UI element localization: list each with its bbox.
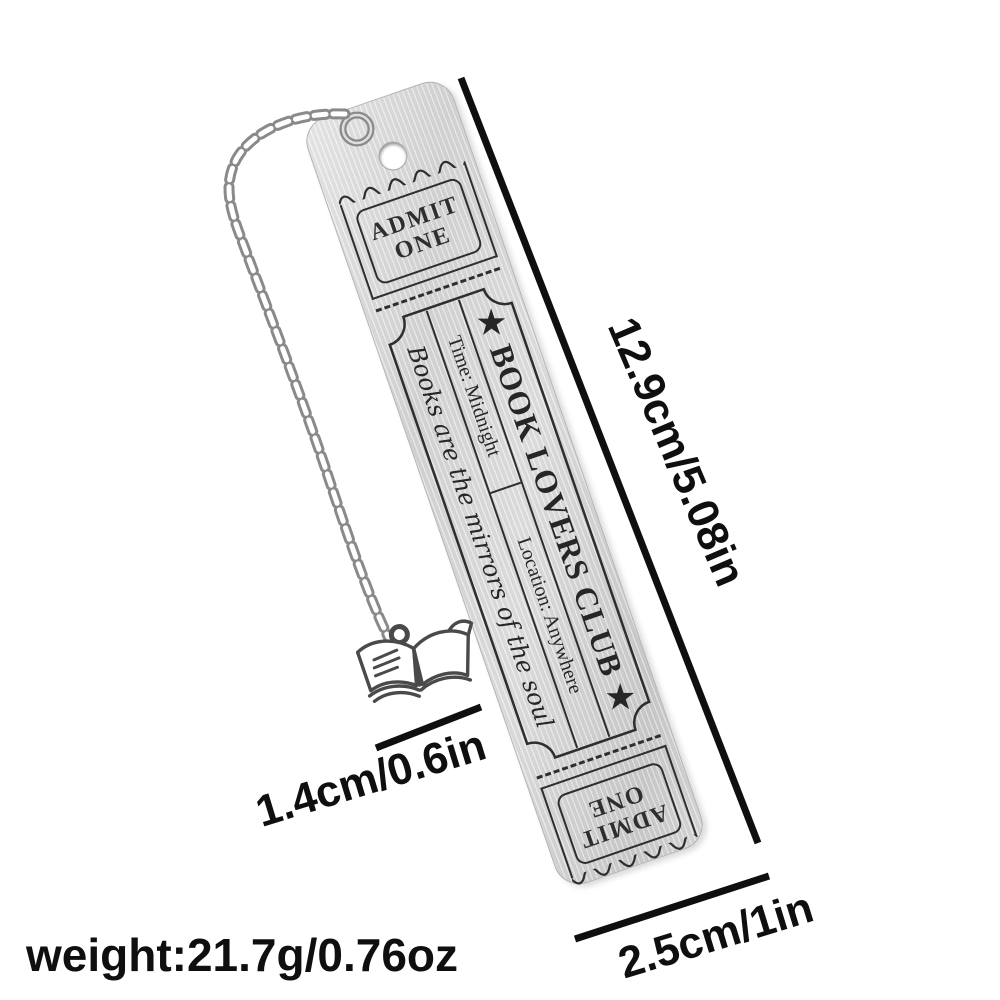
photo-overlay: [0, 0, 1000, 1000]
chain: [229, 114, 394, 648]
jump-ring-icon: [343, 115, 371, 143]
weight-label: weight:21.7g/0.76oz: [26, 928, 458, 982]
book-charm-icon: [355, 615, 482, 704]
length-dimension-line: [461, 78, 758, 843]
product-photo: ADMIT ONE ★ BOOK LOVERS CLUB ★ Time: Mid…: [0, 0, 1000, 1000]
